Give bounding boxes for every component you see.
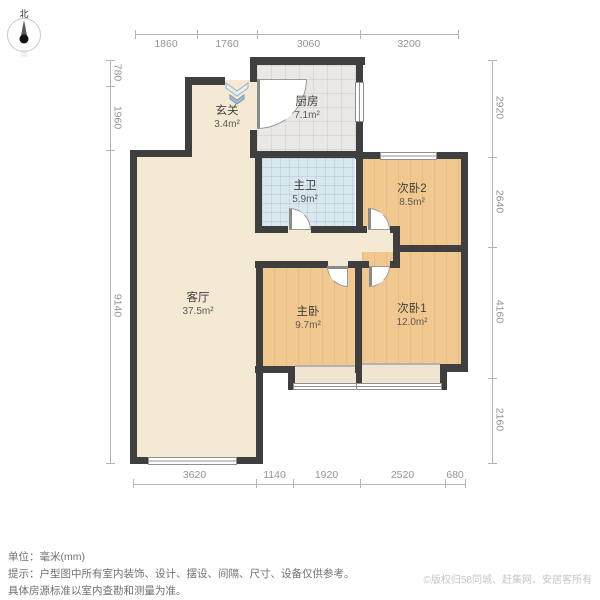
room-label-master: 主卧 9.7m² bbox=[273, 306, 343, 332]
wall-bedroom1-right bbox=[461, 252, 468, 372]
dim-tick bbox=[106, 150, 115, 151]
room-label-entry: 玄关 3.4m² bbox=[192, 105, 262, 131]
dim-tick bbox=[488, 157, 497, 158]
footer-copyright: ©版权归58同城、赶集网、安居客所有 bbox=[424, 571, 593, 586]
room-area: 5.9m² bbox=[270, 193, 340, 206]
dim-line-bottom bbox=[133, 484, 465, 485]
room-area: 8.5m² bbox=[377, 196, 447, 209]
window-bay-right bbox=[356, 383, 442, 390]
dim-tick bbox=[488, 247, 497, 248]
floorplan-page: 北 南 bbox=[0, 0, 600, 600]
wall-living-topleft bbox=[130, 150, 192, 157]
room-label-living: 客厅 37.5m² bbox=[163, 292, 233, 318]
dim-label-top: 1860 bbox=[135, 38, 197, 50]
wall-living-left bbox=[130, 150, 137, 464]
window-bay-left bbox=[293, 383, 358, 390]
compass-south-label: 南 bbox=[20, 48, 28, 58]
room-label-bedroom2: 次卧2 8.5m² bbox=[377, 183, 447, 209]
footer-tip-line2: 具体房源标准以室内查勘和测量为准。 bbox=[8, 583, 187, 598]
footer-tip-line1: 提示：户型图中所有室内装饰、设计、摆设、间隔、尺寸、设备仅供参考。 bbox=[8, 566, 355, 581]
wall-living-right bbox=[256, 261, 263, 464]
room-name: 主卧 bbox=[273, 306, 343, 319]
dim-label-right: 2920 bbox=[493, 78, 506, 138]
wall-bath-left bbox=[255, 151, 262, 233]
room-name: 次卧2 bbox=[377, 183, 447, 196]
bay-divider-line bbox=[295, 365, 356, 367]
dim-label-right: 2160 bbox=[493, 390, 506, 450]
dim-label-right: 4160 bbox=[493, 282, 506, 342]
window-living bbox=[148, 457, 237, 465]
dim-label-left: 9140 bbox=[111, 276, 124, 336]
bay-divider-line bbox=[362, 363, 440, 365]
dim-tick bbox=[488, 463, 497, 464]
room-label-kitchen: 厨房 7.1m² bbox=[272, 96, 342, 122]
dim-line-top bbox=[135, 34, 458, 35]
dim-tick bbox=[488, 378, 497, 379]
compass: 北 南 bbox=[4, 6, 44, 60]
dim-label-left: 1960 bbox=[111, 88, 124, 148]
room-area: 37.5m² bbox=[163, 305, 233, 318]
wall-hall-bottom-left bbox=[255, 261, 328, 268]
dim-label-bottom: 1920 bbox=[293, 469, 360, 481]
room-area: 12.0m² bbox=[377, 316, 447, 329]
wall-entry-left bbox=[185, 77, 192, 157]
dim-label-top: 3060 bbox=[257, 38, 360, 50]
room-area: 3.4m² bbox=[192, 118, 262, 131]
wall-master-bedroom1-divider bbox=[355, 261, 362, 373]
entrance-arrow-icon bbox=[223, 82, 251, 106]
room-area: 9.7m² bbox=[273, 319, 343, 332]
room-name: 客厅 bbox=[163, 292, 233, 305]
dim-label-top: 3200 bbox=[360, 38, 458, 50]
window-bedroom2 bbox=[380, 152, 437, 160]
dim-label-right: 2640 bbox=[493, 172, 506, 232]
dim-label-bottom: 1140 bbox=[256, 469, 293, 481]
room-name: 次卧1 bbox=[377, 303, 447, 316]
floor-bay-right bbox=[362, 364, 440, 384]
room-name: 玄关 bbox=[192, 105, 262, 118]
room-name: 主卫 bbox=[270, 180, 340, 193]
wall-hall-end bbox=[393, 226, 400, 268]
dim-tick bbox=[458, 30, 459, 39]
wall-kitchen-top bbox=[250, 57, 365, 65]
footer-unit-note: 单位：毫米(mm) bbox=[8, 549, 85, 564]
room-label-bedroom1: 次卧1 12.0m² bbox=[377, 303, 447, 329]
room-label-bathroom: 主卫 5.9m² bbox=[270, 180, 340, 206]
dim-label-top: 1760 bbox=[197, 38, 257, 50]
window-kitchen bbox=[355, 82, 364, 122]
dim-label-bottom: 3620 bbox=[133, 469, 256, 481]
dim-tick bbox=[106, 463, 115, 464]
room-area: 7.1m² bbox=[272, 109, 342, 122]
wall-kitchen-bottom bbox=[250, 151, 363, 158]
wall-kitchen-left-upper bbox=[250, 57, 257, 82]
room-name: 厨房 bbox=[272, 96, 342, 109]
wall-bedroom-divider bbox=[393, 245, 468, 252]
wall-kitchen-right-lower bbox=[356, 122, 363, 233]
compass-north-label: 北 bbox=[19, 9, 28, 19]
compass-hub bbox=[20, 35, 29, 44]
wall-bedroom2-right bbox=[461, 152, 468, 252]
wall-kitchen-right-upper bbox=[356, 57, 363, 82]
dim-tick bbox=[488, 60, 497, 61]
dim-label-bottom: 680 bbox=[420, 469, 490, 481]
floor-bay-left bbox=[295, 366, 356, 384]
